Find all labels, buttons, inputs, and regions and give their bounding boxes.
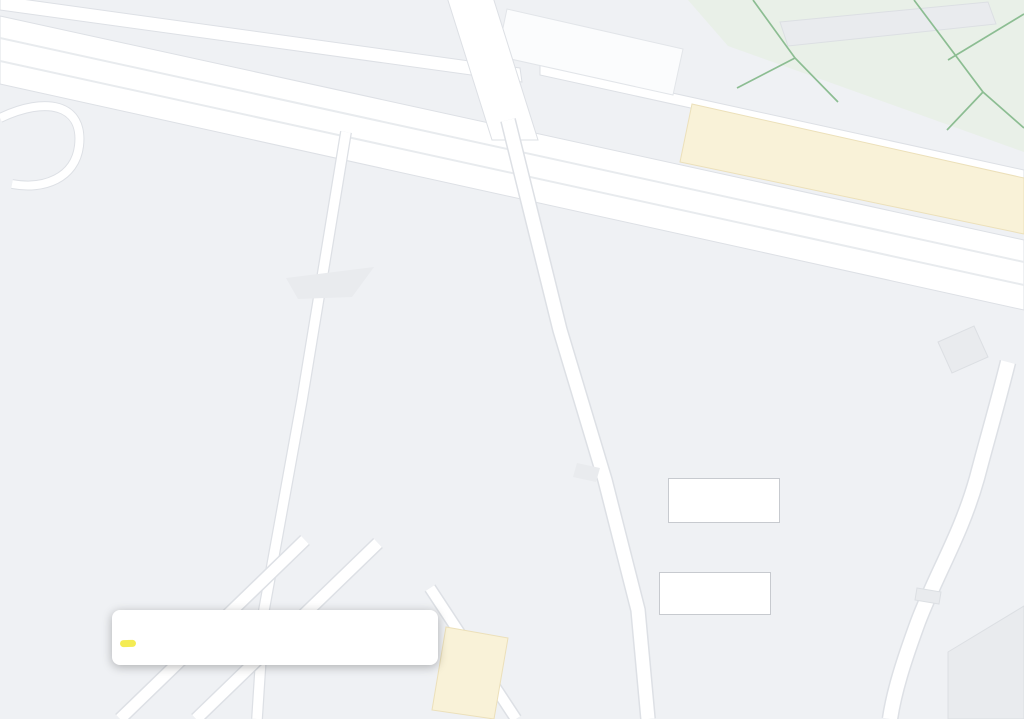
total-distance-line (120, 640, 136, 647)
shops-area-south (432, 627, 508, 719)
start-meta-box (668, 478, 780, 523)
map-screenshot: P (0, 0, 1024, 719)
race-office-box (659, 572, 771, 615)
measure-distance-popup (112, 610, 438, 665)
